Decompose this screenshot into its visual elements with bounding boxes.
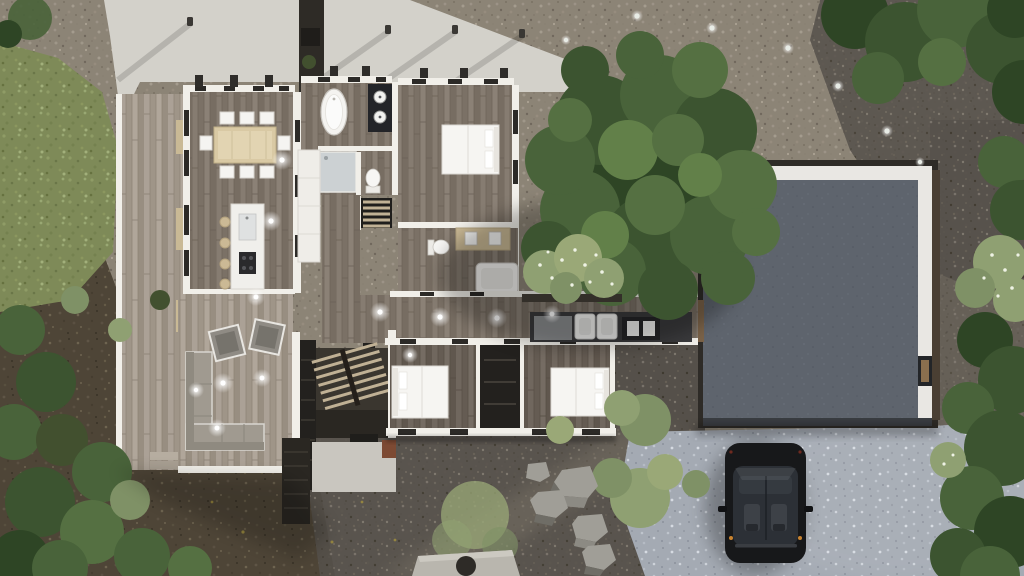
- downlight: [247, 288, 265, 306]
- car-glass-reflection: [735, 468, 796, 480]
- downlight: [253, 369, 271, 387]
- lounge-chair-1: [209, 325, 245, 361]
- toilet-1: [366, 169, 380, 193]
- south-bedrooms: [386, 345, 616, 442]
- bed-3: [551, 368, 609, 416]
- great-room-south-glass: [183, 289, 295, 294]
- deck-west-fascia: [116, 94, 123, 470]
- bedroom1-west-wall: [392, 82, 398, 195]
- downlight: [208, 419, 226, 437]
- downlight: [272, 150, 292, 170]
- fence-east-of-garage: [932, 170, 940, 420]
- bed-2: [392, 366, 448, 418]
- car-windshield-cowl: [735, 544, 797, 548]
- car-mirror-right: [804, 506, 813, 512]
- south-wall-shadow: [386, 436, 616, 442]
- south-wall: [386, 428, 616, 436]
- deck-planter-1: [176, 208, 183, 250]
- car-marker-light-left: [729, 536, 733, 540]
- stair-void: [316, 410, 388, 438]
- double-vanity: [368, 84, 392, 132]
- downlight: [430, 307, 450, 327]
- entry-plant-1: [302, 55, 316, 69]
- entry-planter-box: [301, 28, 320, 46]
- scene-canvas: [0, 0, 1024, 576]
- bed-primary: [442, 125, 499, 174]
- bath-divider-wall: [318, 146, 392, 151]
- walk-in-closet: [480, 345, 520, 433]
- garage-side-door-panel: [921, 360, 929, 382]
- globe-light: [832, 80, 844, 92]
- globe-light: [782, 42, 794, 54]
- downlight: [370, 302, 390, 322]
- lounge-deck-fascia: [178, 466, 293, 473]
- globe-light: [631, 10, 643, 22]
- downlight: [213, 373, 233, 393]
- lounge-chair-2: [249, 319, 285, 355]
- hall-floor: [322, 195, 360, 295]
- freestanding-bathtub: [321, 89, 347, 135]
- downlight: [402, 347, 418, 363]
- globe-light: [706, 22, 718, 34]
- rust-accent-door: [382, 440, 396, 458]
- garage-shadow: [696, 424, 938, 436]
- kitchen-island: [231, 204, 264, 289]
- car-mirror-left: [718, 506, 727, 512]
- globe-light: [915, 157, 925, 167]
- globe-light: [881, 125, 893, 137]
- car-taillight-right: [798, 450, 801, 453]
- island-cooktop: [239, 252, 256, 274]
- stone-firepit: [456, 556, 476, 576]
- downlight: [261, 211, 281, 231]
- downlight: [188, 382, 204, 398]
- car-marker-light-right: [798, 536, 802, 540]
- toilet-2: [428, 240, 449, 255]
- car-taillight-left: [729, 450, 732, 453]
- deck-planter-3: [176, 120, 183, 154]
- globe-light: [561, 35, 571, 45]
- dining-table: [214, 127, 276, 163]
- aerial-render: [0, 0, 1024, 576]
- upper-stair: [358, 196, 392, 230]
- deck-floor: [122, 94, 183, 470]
- black-suv: [705, 440, 813, 576]
- south-door-gap: [350, 434, 378, 442]
- wc-divider: [356, 152, 361, 195]
